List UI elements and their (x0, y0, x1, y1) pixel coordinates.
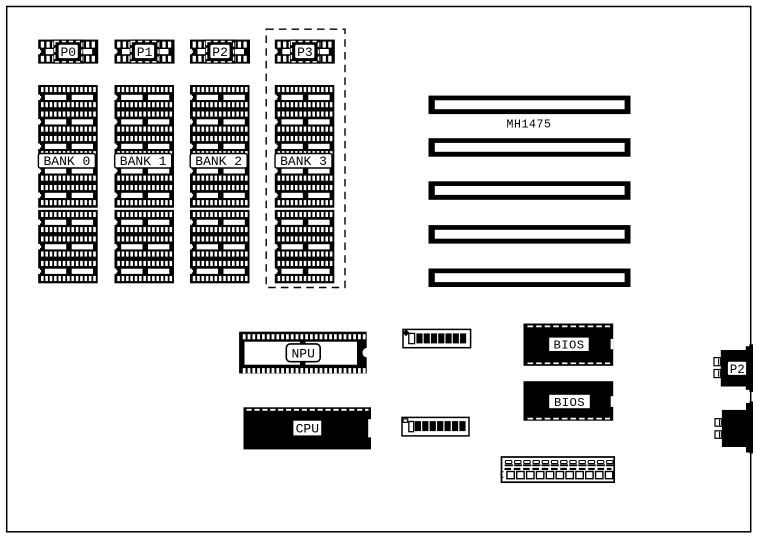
svg-text:P2: P2 (730, 363, 745, 377)
svg-text:BIOS: BIOS (553, 339, 584, 353)
svg-text:P2: P2 (212, 45, 228, 60)
svg-text:P1: P1 (137, 45, 153, 60)
svg-text:BANK 0: BANK 0 (43, 154, 90, 169)
svg-text:MH1475: MH1475 (506, 118, 551, 131)
svg-text:BANK 1: BANK 1 (120, 154, 167, 169)
svg-text:P3: P3 (297, 45, 313, 60)
svg-text:BANK 3: BANK 3 (280, 154, 327, 169)
svg-text:BIOS: BIOS (554, 396, 585, 410)
svg-text:P0: P0 (60, 45, 76, 60)
svg-text:BANK 2: BANK 2 (195, 154, 242, 169)
svg-text:CPU: CPU (296, 422, 319, 437)
svg-text:NPU: NPU (291, 346, 314, 361)
